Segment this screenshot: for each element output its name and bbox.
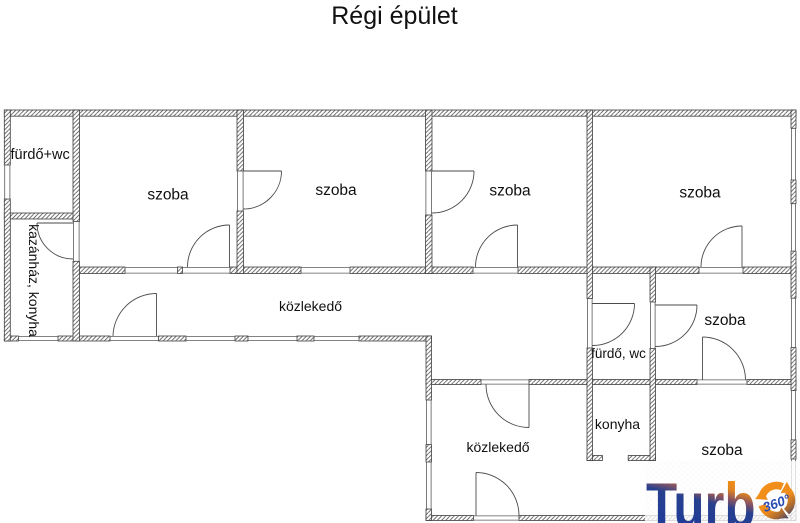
svg-text:szoba: szoba <box>147 187 189 204</box>
svg-text:szoba: szoba <box>489 183 531 200</box>
svg-text:konyha: konyha <box>595 416 640 432</box>
svg-text:Turb: Turb <box>646 471 756 523</box>
svg-text:fürdő+wc: fürdő+wc <box>11 147 70 163</box>
svg-text:szoba: szoba <box>679 185 721 202</box>
svg-text:szoba: szoba <box>315 182 357 199</box>
svg-text:közlekedő: közlekedő <box>279 298 342 314</box>
svg-text:kazánház, konyha: kazánház, konyha <box>26 224 42 337</box>
svg-text:közlekedő: közlekedő <box>466 439 529 455</box>
svg-text:szoba: szoba <box>704 312 746 329</box>
svg-text:Régi épület: Régi épület <box>331 2 458 30</box>
svg-text:fürdő, wc: fürdő, wc <box>591 346 646 361</box>
svg-text:szoba: szoba <box>701 442 743 459</box>
